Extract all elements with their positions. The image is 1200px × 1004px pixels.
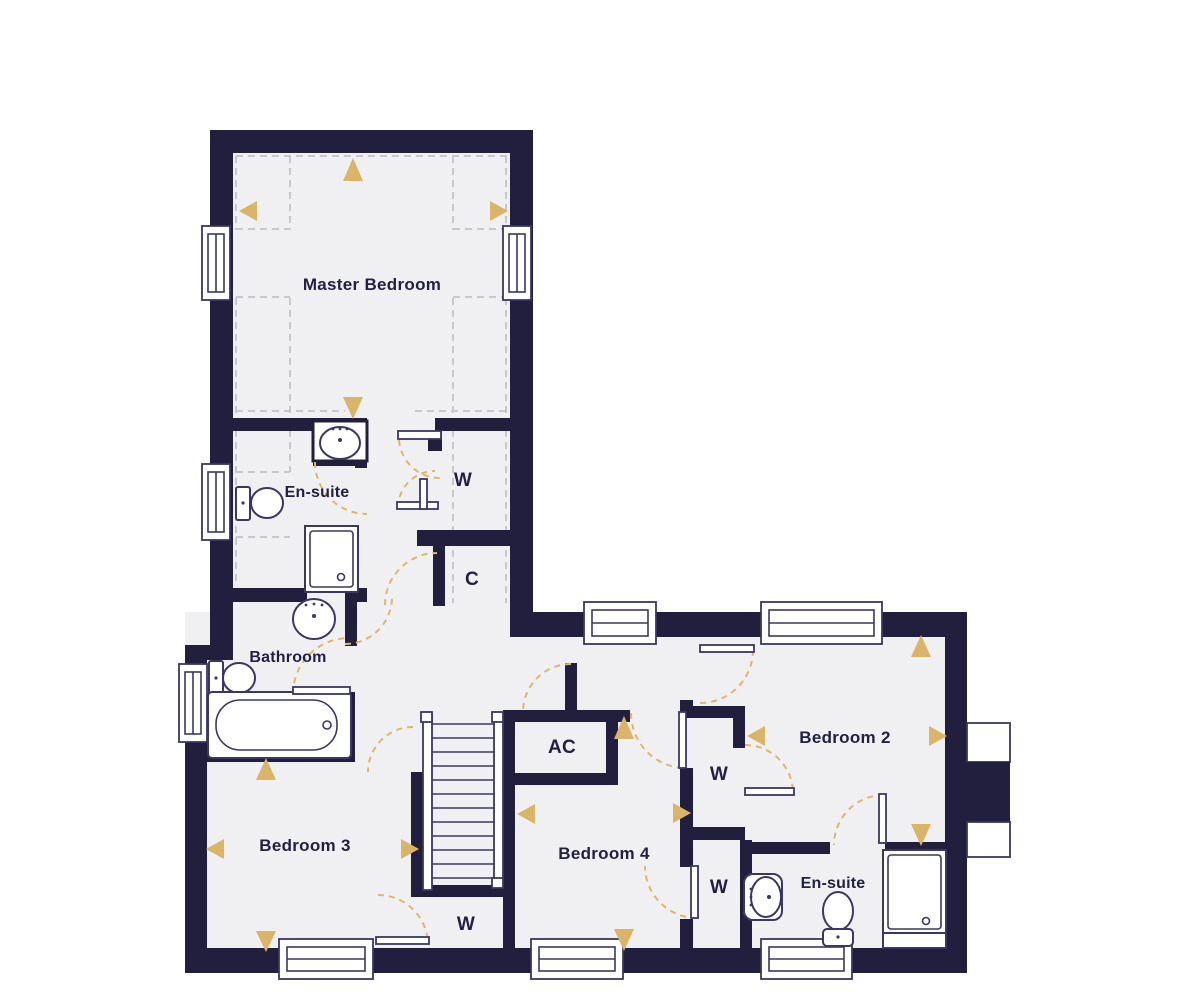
room-label-bedroom-4: Bedroom 4: [558, 844, 650, 863]
shower-icon: [883, 850, 946, 948]
room-label-master-bedroom: Master Bedroom: [303, 275, 441, 294]
door-leaf: [293, 687, 350, 694]
room-label-ensuite-top: En-suite: [285, 484, 350, 501]
toilet-icon: [209, 661, 255, 695]
room-label-wardrobe-lower: W: [710, 877, 728, 898]
sink-icon: [744, 874, 782, 920]
door-leaf: [420, 479, 427, 509]
room-label-bedroom-3: Bedroom 3: [259, 836, 351, 855]
window-ensuite-left: [202, 464, 230, 540]
sink-icon: [313, 421, 367, 461]
door-leaf: [398, 431, 441, 439]
window-master-left: [202, 226, 230, 300]
shower-icon: [305, 526, 358, 592]
room-label-ac: AC: [548, 737, 576, 758]
room-label-wardrobe-top: W: [454, 470, 472, 491]
toilet-icon: [236, 487, 283, 520]
door-leaf: [397, 502, 438, 509]
door-leaf: [376, 937, 429, 944]
door-leaf: [700, 645, 754, 652]
floor-plan-page: Master Bedroom En-suite W C Bathroom Bed…: [0, 0, 1200, 1004]
room-label-wardrobe-stairs: W: [457, 914, 475, 935]
window-bedroom2-top: [761, 602, 882, 644]
floor-plan-canvas: Master Bedroom En-suite W C Bathroom Bed…: [0, 0, 1200, 1004]
chimney: [967, 723, 1010, 857]
room-label-bedroom-2: Bedroom 2: [799, 728, 891, 747]
window-bedroom3-bottom: [279, 939, 373, 979]
room-label-cupboard: C: [465, 569, 479, 590]
door-leaf: [879, 794, 886, 843]
window-landing-top: [584, 602, 656, 644]
floor-top-wing: [210, 130, 533, 637]
room-label-bathroom: Bathroom: [249, 649, 326, 666]
window-bedroom4-bottom: [531, 939, 623, 979]
sink-icon: [293, 599, 335, 639]
toilet-icon: [823, 892, 853, 946]
window-master-right: [503, 226, 531, 300]
window-bathroom-left: [179, 664, 207, 742]
room-label-wardrobe-upper: W: [710, 764, 728, 785]
door-leaf: [679, 712, 686, 768]
door-leaf: [745, 788, 794, 795]
door-leaf: [691, 866, 698, 918]
bathtub-icon: [208, 692, 351, 758]
room-label-ensuite-bottom: En-suite: [801, 875, 866, 892]
